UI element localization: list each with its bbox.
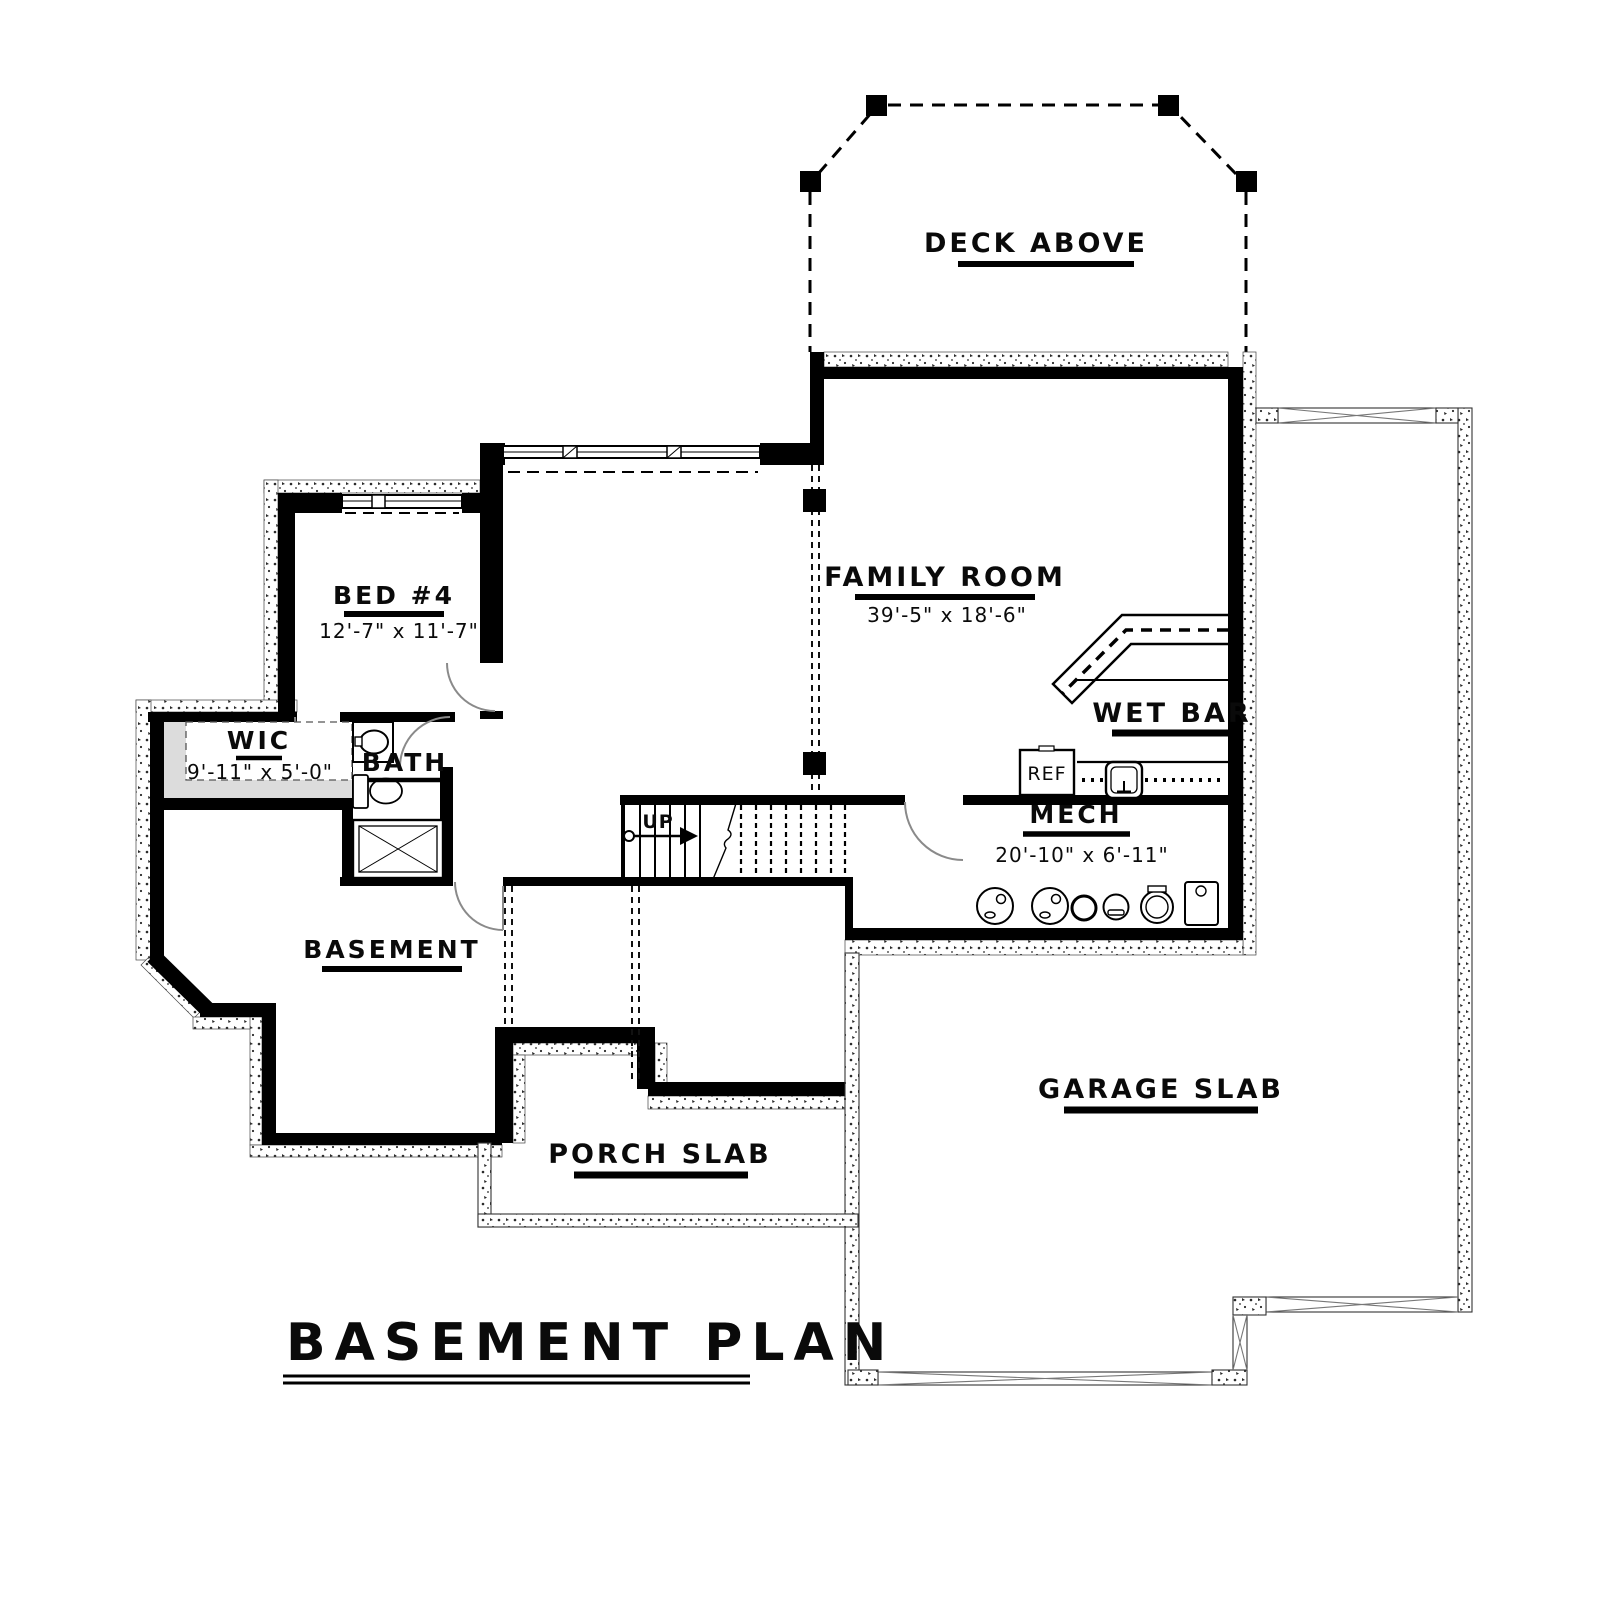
porch-label: PORCH SLAB [548,1139,771,1170]
deck-label: DECK ABOVE [924,228,1148,259]
stair-break-line [711,800,737,884]
basement-label: BASEMENT [303,935,480,964]
mech-label: MECH [1029,800,1122,829]
bed4-label: BED #4 [333,581,455,610]
sink-faucet [355,737,362,746]
deck-posts [800,95,1257,192]
up-arrow-head [680,827,698,845]
furnace-1 [977,888,1013,924]
bed4-dims: 12'-7" x 11'-7" [319,619,479,643]
floor-plan-svg: DECK ABOVE [0,0,1600,1600]
up-arrow-tail [624,831,634,841]
mech-door-arc [905,802,963,860]
family-room-dims: 39'-5" x 18'-6" [867,603,1027,627]
wic-label: WIC [227,726,291,755]
toilet-tank [353,775,368,808]
bath-fixtures [353,722,443,878]
garage-right-wall [1458,408,1472,1312]
slab-walls [478,408,1472,1385]
furnace-2 [1032,888,1068,924]
stairs [623,795,845,886]
floor-drain [1072,896,1096,920]
mech-equipment [977,882,1218,925]
window-middle [503,446,760,472]
support-posts [803,489,826,775]
fridge: REF [1020,746,1074,795]
bath-label: BATH [362,748,448,777]
wic-dims: 9'-11" x 5'-0" [187,760,333,784]
window-bed4 [342,495,462,513]
plan-title: BASEMENT PLAN [286,1313,895,1373]
bar-counter [1053,615,1228,703]
fridge-label: REF [1027,763,1066,785]
family-room-label: FAMILY ROOM [824,562,1066,593]
bed4-door-arc [447,663,495,711]
stairs-up-label: UP [642,811,673,833]
plan-title-group: BASEMENT PLAN [283,1313,895,1383]
sump [1104,895,1129,920]
wetbar-label: WET BAR [1092,698,1251,729]
porch-bottom-wall [478,1214,858,1227]
basement-plan-page: DECK ABOVE [0,0,1600,1600]
basement-door-arc [455,882,503,930]
mech-dims: 20'-10" x 6'-11" [995,843,1168,867]
beam-lines [505,465,819,1082]
garage-label: GARAGE SLAB [1038,1074,1284,1105]
